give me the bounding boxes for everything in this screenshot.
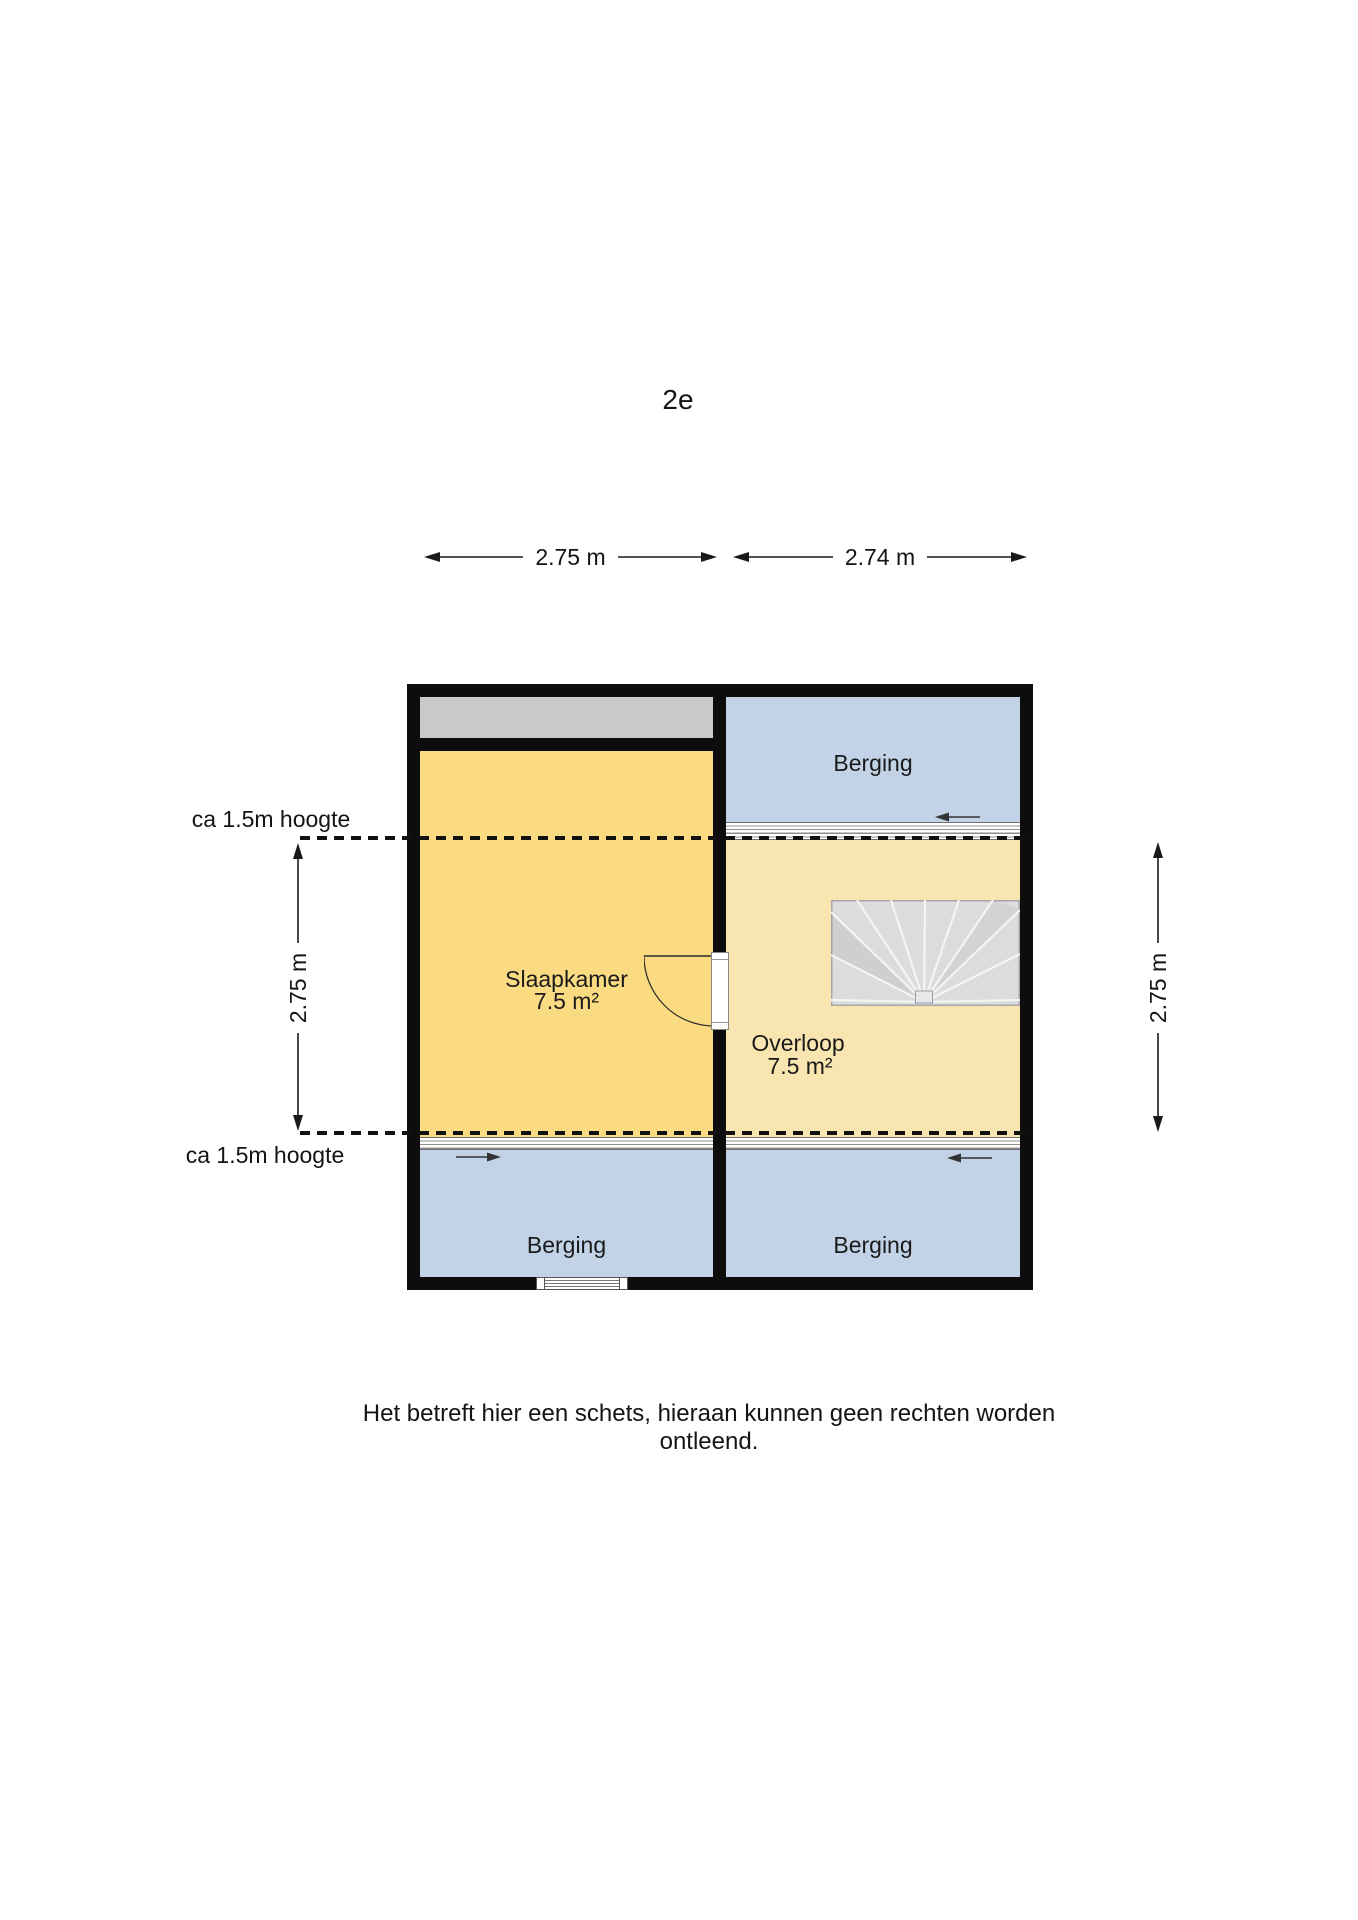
height-note-lower: ca 1.5m hoogte xyxy=(155,1142,375,1168)
room-label-berging-top-right: Berging xyxy=(726,749,1020,777)
arrow-left-icon xyxy=(935,810,981,824)
dimension-top-right: 2.74 m xyxy=(733,549,1027,565)
arrowhead-down-icon xyxy=(1153,1116,1163,1132)
door-frame xyxy=(711,952,729,1030)
dimension-top-left: 2.75 m xyxy=(424,549,717,565)
window-icon xyxy=(536,1277,628,1290)
dimension-label-right: 2.75 m xyxy=(1144,928,1172,1048)
room-label-berging-bottom-right: Berging xyxy=(726,1231,1020,1259)
knee-wall-bottom-right xyxy=(726,1137,1020,1150)
arrowhead-up-icon xyxy=(293,843,303,859)
disclaimer-text: Het betreft hier een schets, hieraan kun… xyxy=(329,1400,1089,1456)
room-area-overloop: 7.5 m² xyxy=(728,1052,872,1080)
window-end-cap xyxy=(619,1277,628,1290)
arrow-left-icon xyxy=(947,1151,993,1165)
window-end-cap xyxy=(536,1277,545,1290)
door-swing-icon xyxy=(644,950,720,1030)
knee-wall-bottom-left xyxy=(420,1137,713,1150)
height-note-upper: ca 1.5m hoogte xyxy=(161,806,381,832)
height-dashed-line-lower xyxy=(300,1131,1033,1135)
page-title: 2e xyxy=(578,384,778,416)
dimension-label-top-right: 2.74 m xyxy=(833,543,927,571)
height-dashed-line-upper xyxy=(300,836,1033,840)
stairs-icon xyxy=(831,900,1020,1006)
window-panes xyxy=(545,1278,619,1289)
floorplan-page: 2e 2.75 m 2.74 m Slaapkamer 7.5 m² Bergi… xyxy=(0,0,1358,1920)
room-slaapkamer xyxy=(420,751,713,1137)
low-height-attic-strip xyxy=(420,697,713,738)
arrow-right-icon xyxy=(455,1150,501,1164)
dimension-label-left: 2.75 m xyxy=(284,928,312,1048)
room-label-berging-bottom-left: Berging xyxy=(420,1231,713,1259)
arrowhead-up-icon xyxy=(1153,842,1163,858)
arrowhead-down-icon xyxy=(293,1115,303,1131)
dimension-label-top-left: 2.75 m xyxy=(523,543,617,571)
